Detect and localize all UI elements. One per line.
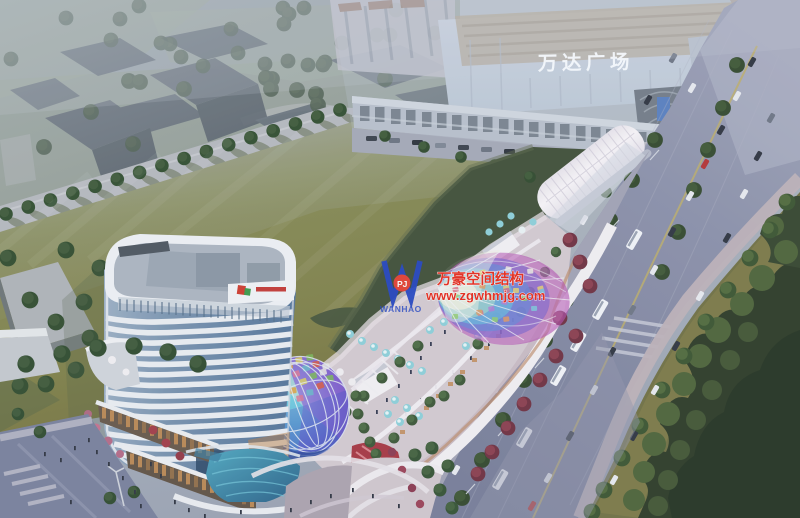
svg-text:WANHAO: WANHAO [380, 304, 422, 314]
svg-text:万豪空间结构: 万豪空间结构 [436, 270, 524, 288]
svg-text:www.zgwhmjg.com: www.zgwhmjg.com [425, 288, 545, 303]
svg-text:PJ: PJ [397, 279, 408, 289]
svg-text:万达广场: 万达广场 [537, 50, 634, 75]
